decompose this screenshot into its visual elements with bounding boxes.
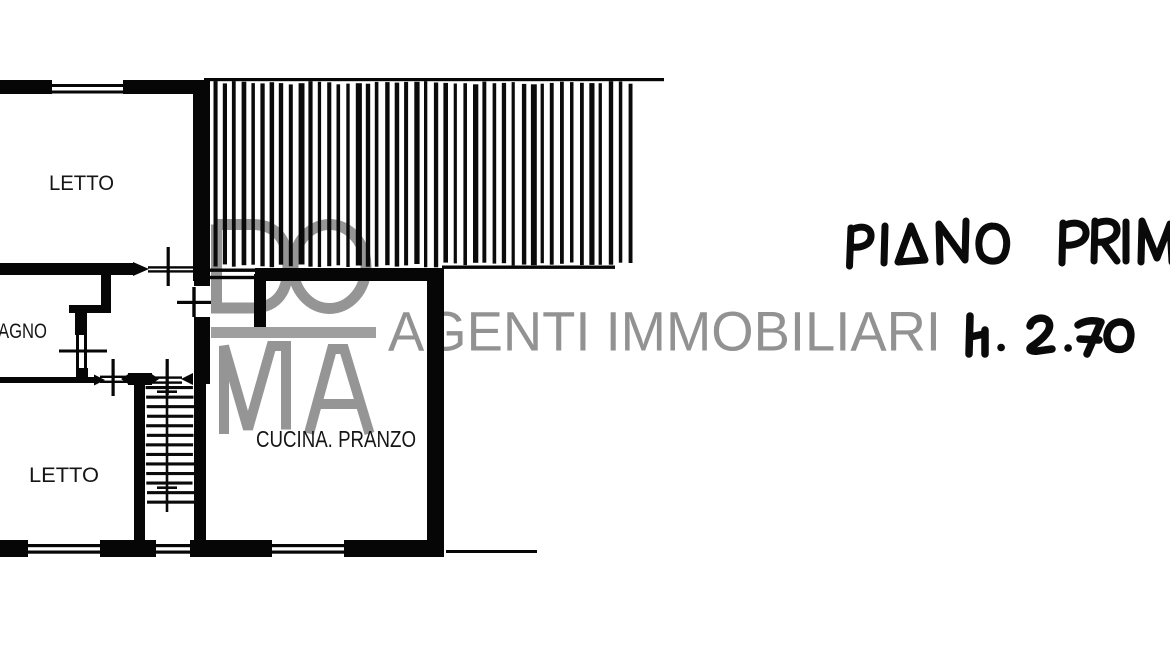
svg-text:AGENTI IMMOBILIARI: AGENTI IMMOBILIARI [388, 300, 941, 363]
svg-text:LETTO: LETTO [29, 464, 99, 487]
svg-text:AGNO: AGNO [0, 320, 47, 343]
svg-text:CUCINA. PRANZO: CUCINA. PRANZO [256, 426, 416, 452]
svg-text:LETTO: LETTO [49, 172, 114, 195]
